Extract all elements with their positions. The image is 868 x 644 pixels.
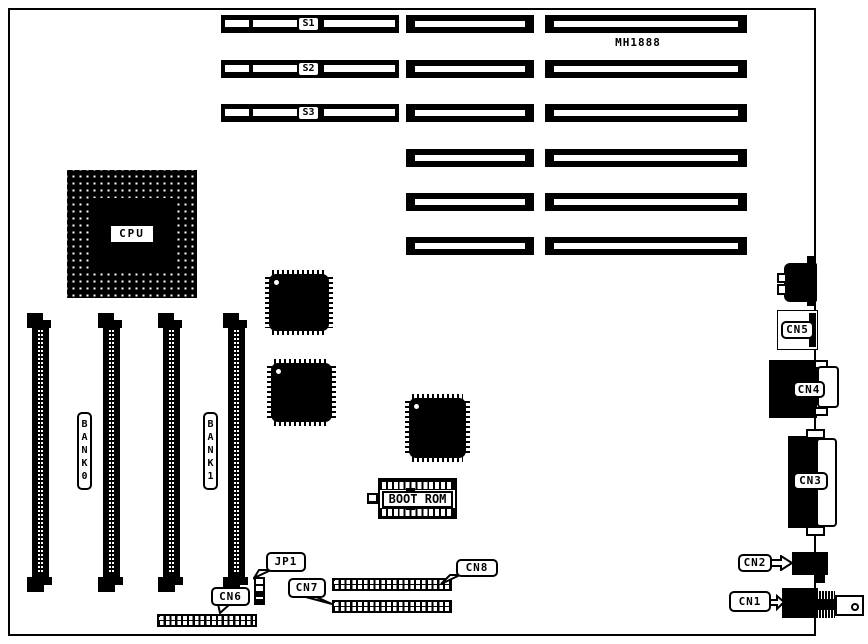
cn4-mount-tab bbox=[814, 407, 828, 416]
cn3-label: CN3 bbox=[793, 472, 828, 490]
callout-cn2: CN2 bbox=[738, 554, 772, 572]
simm-slot-2 bbox=[98, 313, 128, 593]
cn1-connector bbox=[782, 588, 818, 618]
cn2-arrow bbox=[769, 555, 794, 571]
cn3-mount-tab bbox=[806, 526, 825, 536]
pin1-dot bbox=[274, 280, 279, 285]
expansion-slot-segment bbox=[406, 193, 534, 211]
expansion-slot-segment bbox=[406, 60, 534, 78]
slot-label-s3: S3 bbox=[297, 105, 320, 121]
expansion-slot-segment bbox=[406, 237, 534, 255]
board-outline bbox=[8, 8, 816, 636]
qfp-chip-1 bbox=[265, 270, 333, 335]
qfp-chip-3 bbox=[405, 394, 470, 462]
cn2-connector-stem bbox=[816, 575, 825, 583]
bnc-center-pin bbox=[851, 603, 859, 611]
slot-label-s1: S1 bbox=[297, 16, 320, 32]
expansion-slot-segment bbox=[545, 193, 747, 211]
keyboard-connector bbox=[777, 256, 817, 306]
callout-jp1: JP1 bbox=[266, 552, 306, 572]
expansion-slot-segment bbox=[406, 104, 534, 122]
cn8-header bbox=[332, 578, 452, 591]
qfp-chip-2 bbox=[267, 359, 336, 426]
cn6-header bbox=[157, 614, 257, 627]
cn4-label: CN4 bbox=[793, 381, 825, 398]
slot-label-s2: S2 bbox=[297, 61, 320, 77]
simm-slot-3 bbox=[158, 313, 188, 593]
bank1-label: BANK1 bbox=[203, 412, 218, 490]
pin1-dot bbox=[276, 369, 281, 374]
board-model-label: MH1888 bbox=[598, 36, 678, 50]
boot-rom-label: BOOT ROM bbox=[382, 491, 453, 508]
simm-slot-4 bbox=[223, 313, 253, 593]
callout-cn1: CN1 bbox=[729, 591, 771, 612]
expansion-slot-s1: S1 bbox=[221, 15, 399, 33]
cn7-header bbox=[332, 600, 452, 613]
expansion-slot-segment bbox=[545, 15, 747, 33]
expansion-slot-segment bbox=[545, 104, 747, 122]
cn2-connector bbox=[792, 552, 828, 575]
simm-slot-1 bbox=[27, 313, 57, 593]
expansion-slot-segment bbox=[545, 237, 747, 255]
boot-rom-chip: BOOT ROM bbox=[378, 478, 457, 519]
callout-cn8: CN8 bbox=[456, 559, 498, 577]
callout-cn7: CN7 bbox=[288, 578, 326, 598]
expansion-slot-segment bbox=[545, 149, 747, 167]
callout-cn6: CN6 bbox=[211, 587, 250, 606]
expansion-slot-s3: S3 bbox=[221, 104, 399, 122]
expansion-slot-segment bbox=[545, 60, 747, 78]
cpu-chip: CPU bbox=[67, 170, 197, 298]
bnc-thread bbox=[818, 591, 835, 618]
motherboard-diagram: MH1888 S1 S2 S3 CPU bbox=[0, 0, 868, 644]
expansion-slot-s2: S2 bbox=[221, 60, 399, 78]
cn5-label: CN5 bbox=[781, 321, 814, 339]
expansion-slot-segment bbox=[406, 15, 534, 33]
cpu-label: CPU bbox=[110, 225, 154, 243]
bnc-connector bbox=[835, 595, 864, 616]
rom-notch bbox=[367, 493, 379, 504]
pin1-dot bbox=[414, 404, 419, 409]
bank0-label: BANK0 bbox=[77, 412, 92, 490]
expansion-slot-segment bbox=[406, 149, 534, 167]
jp1-jumper bbox=[254, 577, 265, 605]
